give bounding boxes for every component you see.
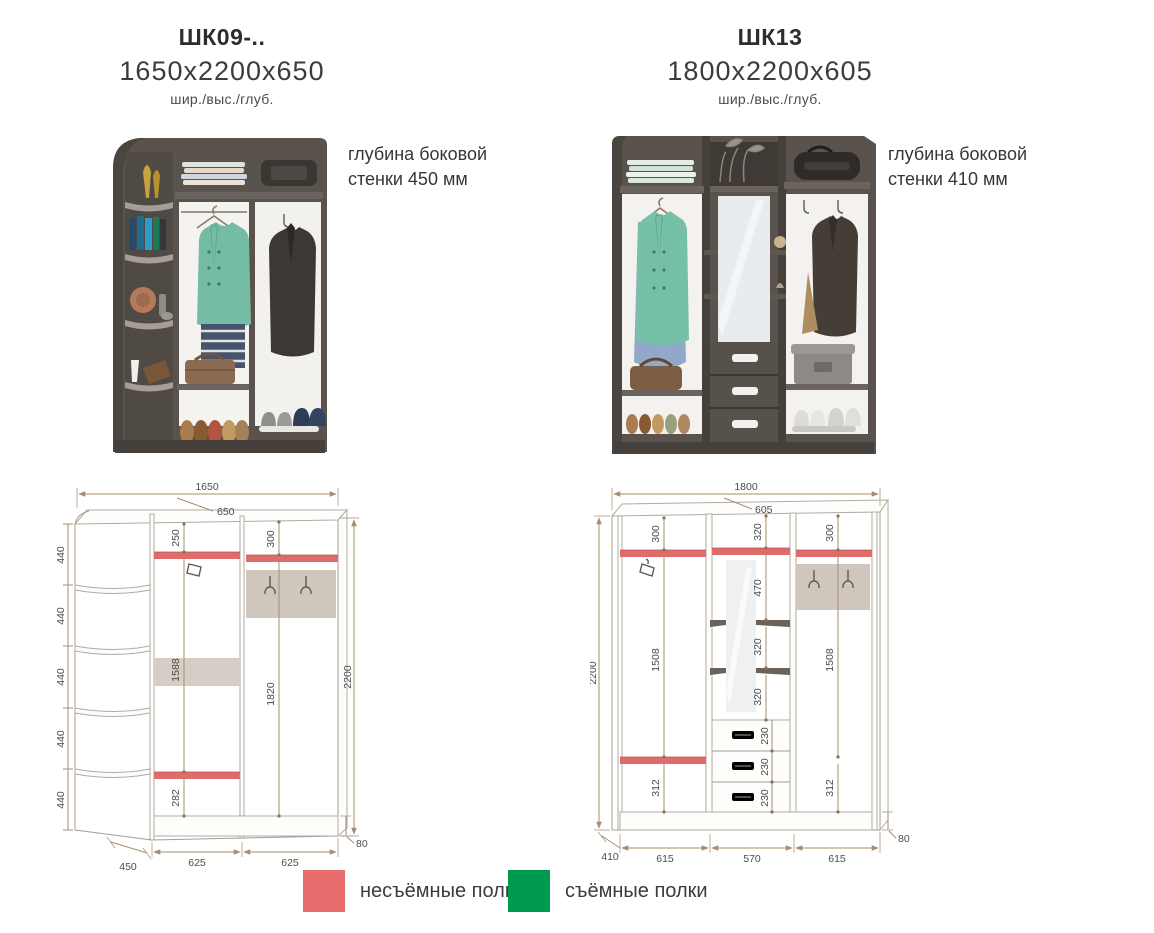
product-size: 1800х2200х605 <box>610 56 930 87</box>
technical-drawing-2: 1800 605 2200 300 1508 312 <box>590 480 935 880</box>
dim-right-bay: 300 1820 <box>265 520 281 817</box>
product-photo-1 <box>85 122 343 467</box>
svg-text:312: 312 <box>824 779 836 797</box>
svg-text:2200: 2200 <box>590 661 599 685</box>
dark-coat <box>269 223 316 357</box>
product-title: ШК13 <box>610 24 930 51</box>
legend-item-fixed-shelves: несъёмные полки <box>303 870 525 912</box>
svg-text:230: 230 <box>759 758 771 776</box>
product-title: ШК09-.. <box>57 24 387 51</box>
svg-text:300: 300 <box>265 530 277 548</box>
svg-text:1800: 1800 <box>734 481 758 493</box>
svg-text:470: 470 <box>752 579 764 597</box>
svg-text:650: 650 <box>217 506 235 518</box>
product-photo-2 <box>598 122 890 467</box>
decor-books <box>129 216 166 250</box>
svg-text:410: 410 <box>601 851 619 863</box>
svg-text:440: 440 <box>55 730 67 748</box>
size-caption: шир./выс./глуб. <box>57 91 387 107</box>
fixed-shelf-label: несъёмные полки <box>360 880 525 903</box>
drawer-unit <box>712 720 790 812</box>
dim-overall-height: 2200 <box>590 516 610 830</box>
svg-text:230: 230 <box>759 727 771 745</box>
svg-text:282: 282 <box>170 789 182 807</box>
side-depth-note-2: глубина боковой стенки 410 мм <box>888 142 1098 192</box>
dim-bottom: 625 625 450 <box>107 837 338 873</box>
svg-text:80: 80 <box>898 833 910 845</box>
svg-text:1588: 1588 <box>170 658 182 682</box>
storage-box <box>791 344 855 384</box>
svg-text:320: 320 <box>752 638 764 656</box>
product-1-header: ШК09-.. 1650х2200х650 шир./выс./глуб. <box>57 24 387 107</box>
svg-text:1508: 1508 <box>650 648 662 672</box>
fixed-shelf-swatch <box>303 870 345 912</box>
dim-side-sections: 440 440 440 440 440 <box>55 524 73 830</box>
svg-text:80: 80 <box>356 838 368 850</box>
shoes-row <box>626 414 690 434</box>
teal-coat <box>636 211 689 345</box>
product-2-header: ШК13 1800х2200х605 шир./выс./глуб. <box>610 24 930 107</box>
svg-text:1650: 1650 <box>195 481 219 493</box>
svg-text:312: 312 <box>650 779 662 797</box>
svg-text:440: 440 <box>55 607 67 625</box>
svg-text:1820: 1820 <box>265 682 277 706</box>
technical-drawing-1: 1650 650 2200 440 440 440 440 440 <box>55 480 370 880</box>
size-caption: шир./выс./глуб. <box>610 91 930 107</box>
drawer-unit <box>710 342 778 442</box>
svg-text:300: 300 <box>824 524 836 542</box>
svg-text:625: 625 <box>188 857 206 869</box>
removable-shelf-swatch <box>508 870 550 912</box>
svg-text:2200: 2200 <box>342 665 354 689</box>
camera-bag <box>261 160 317 186</box>
svg-text:1508: 1508 <box>824 648 836 672</box>
svg-text:440: 440 <box>55 668 67 686</box>
svg-text:605: 605 <box>755 504 773 516</box>
svg-text:570: 570 <box>743 853 761 865</box>
svg-text:450: 450 <box>119 861 137 873</box>
svg-text:440: 440 <box>55 546 67 564</box>
dim-bottom: 615 570 615 410 <box>598 832 880 865</box>
svg-text:615: 615 <box>656 853 674 865</box>
legend-item-removable-shelves: съёмные полки <box>508 870 708 912</box>
teal-coat <box>197 222 251 329</box>
svg-text:300: 300 <box>650 525 662 543</box>
removable-shelf-label: съёмные полки <box>565 880 708 903</box>
svg-text:230: 230 <box>759 789 771 807</box>
dim-overall-width: 1650 <box>77 481 338 508</box>
svg-text:440: 440 <box>55 791 67 809</box>
svg-text:625: 625 <box>281 857 299 869</box>
dim-right-bay: 300 1508 312 <box>824 514 840 813</box>
dim-left-bay: 300 1508 312 <box>650 516 666 813</box>
catalog-page: ШК09-.. 1650х2200х650 шир./выс./глуб. ШК… <box>0 0 1154 933</box>
svg-text:320: 320 <box>752 523 764 541</box>
svg-text:320: 320 <box>752 688 764 706</box>
product-size: 1650х2200х650 <box>57 56 387 87</box>
svg-text:250: 250 <box>170 529 182 547</box>
svg-text:615: 615 <box>828 853 846 865</box>
side-depth-note-1: глубина боковой стенки 450 мм <box>348 142 558 192</box>
